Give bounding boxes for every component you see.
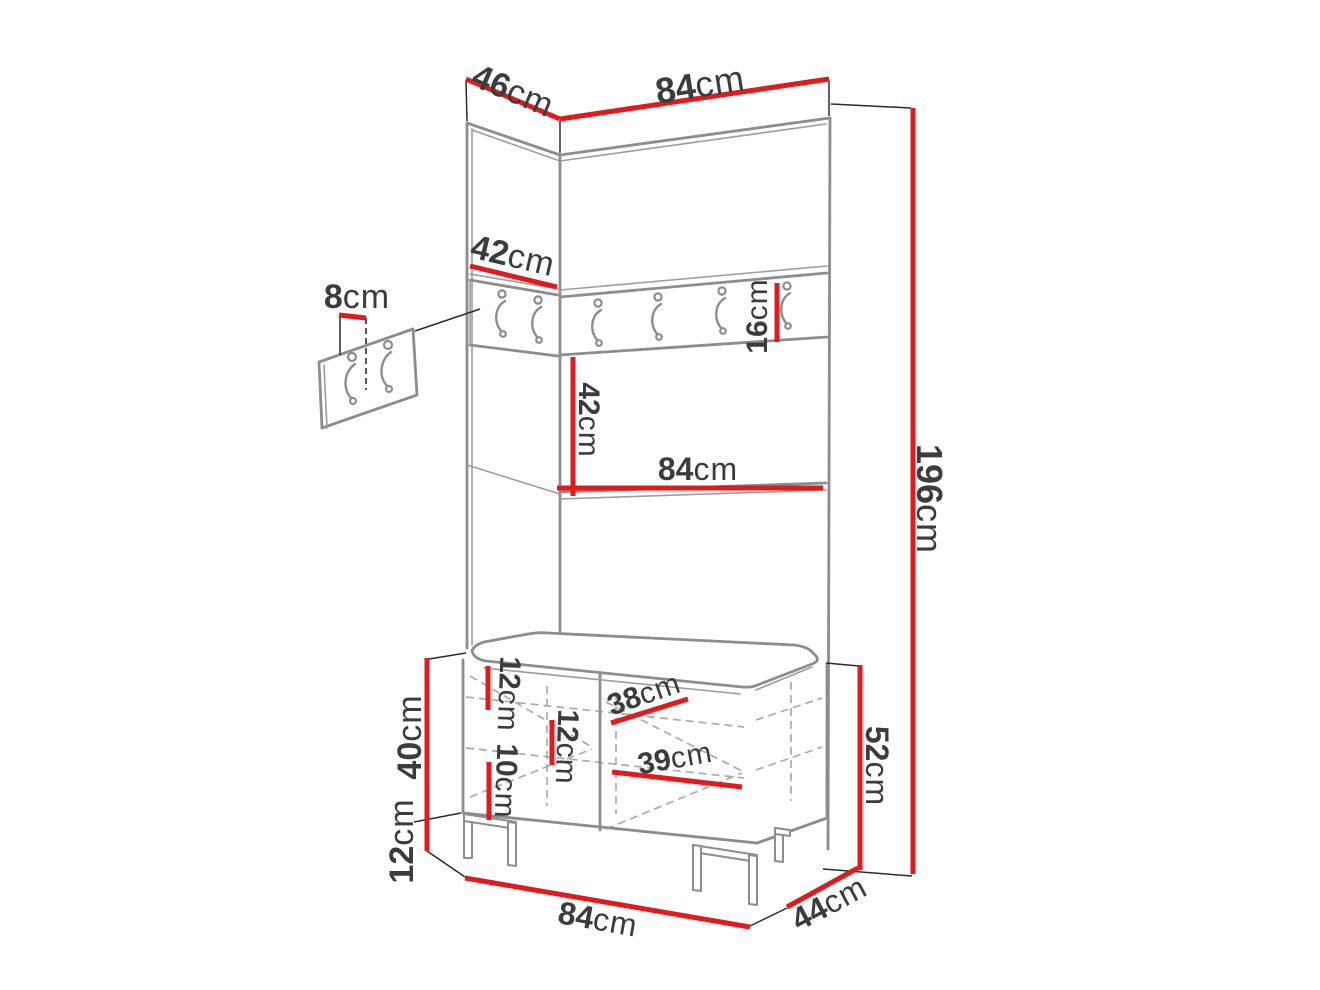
coat-hook-icon — [496, 290, 506, 336]
dim-inner-gap-mid: 12cm — [549, 709, 585, 785]
dim-label: 44cm — [785, 868, 873, 937]
dim-label: 52cm — [859, 726, 895, 806]
coat-hook-icon — [592, 299, 602, 345]
dim-label: 40cm — [391, 694, 429, 779]
dim-label: 46cm — [466, 57, 559, 125]
coat-hook-icon — [716, 287, 726, 333]
dimension-diagram: 46cm 84cm 196cm 42cm 8cm 16cm 42cm 84cm … — [0, 0, 1320, 990]
dim-leg-height: 12cm — [383, 798, 421, 883]
diagram-canvas: 46cm 84cm 196cm 42cm 8cm 16cm 42cm 84cm … — [0, 0, 1320, 990]
dim-top-depth: 46cm — [466, 57, 560, 125]
dim-label: 8cm — [324, 278, 390, 316]
dim-label: 42cm — [573, 382, 606, 457]
dim-hook-offset: 8cm — [324, 278, 390, 318]
hook-panel-detail — [319, 309, 480, 428]
dim-label: 12cm — [383, 798, 421, 883]
dim-side-rail-width: 42cm — [467, 228, 559, 287]
dim-inner-gap-low: 10cm — [488, 743, 524, 820]
dim-bench-width: 84cm — [465, 878, 750, 944]
coat-hook-icon — [532, 296, 542, 342]
dim-top-width: 84cm — [560, 57, 829, 119]
dim-under-rail-height: 42cm — [573, 357, 606, 496]
side-shelf-line — [467, 465, 560, 494]
dim-rail-height: 16cm — [741, 278, 778, 353]
dim-total-height: 196cm — [910, 108, 951, 874]
dim-label: 16cm — [741, 278, 774, 353]
dim-label: 10cm — [488, 743, 524, 819]
dim-bench-depth: 44cm — [785, 868, 873, 938]
coat-hook-icon — [781, 282, 791, 328]
dim-label: 196cm — [910, 444, 951, 554]
dim-label: 84cm — [652, 57, 747, 112]
dim-label: 84cm — [658, 451, 738, 487]
coat-hook-icon — [652, 293, 662, 339]
dim-label: 84cm — [555, 894, 640, 943]
side-panel — [467, 123, 560, 648]
dim-label: 12cm — [491, 656, 527, 732]
dim-label: 12cm — [549, 709, 585, 785]
dim-inner-gap-top: 12cm — [488, 656, 527, 732]
dim-bench-height: 52cm — [859, 665, 895, 870]
